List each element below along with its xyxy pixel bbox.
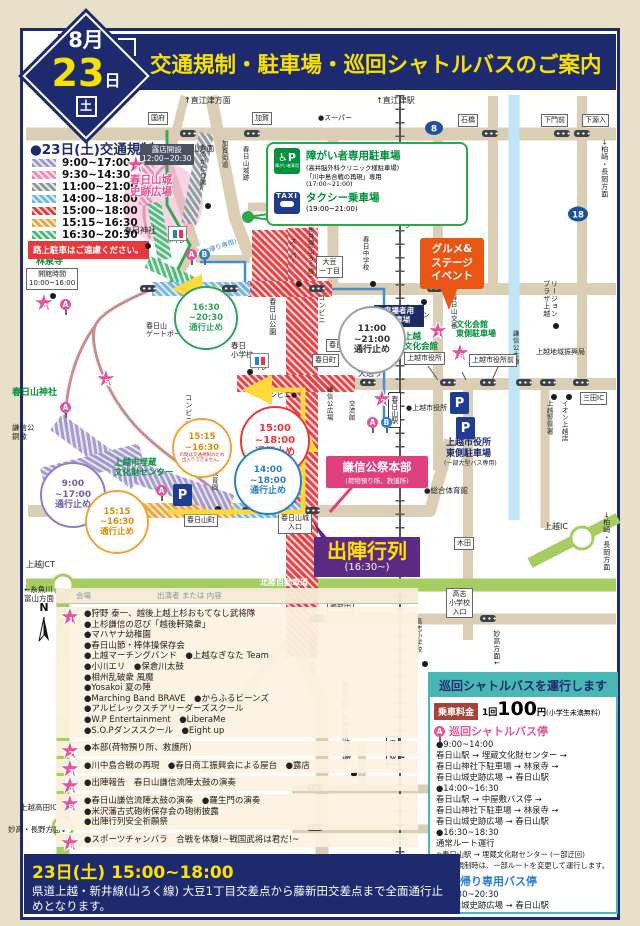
program-row-1: ★1 ●狩野 泰一、越後上越上杉おもてなし武将隊 ●上杉謙信の忍び「越後軒猿衆」… <box>56 607 418 738</box>
page-title: 交通規制・駐車場・巡回シャトルバスのご案内 <box>150 48 602 79</box>
parking-icon: P <box>450 392 469 414</box>
poi-dot <box>247 369 253 375</box>
compass-north: N <box>30 596 58 649</box>
intersection-box: 下門前 <box>541 114 568 127</box>
no-parking-warning: 路上駐車はご遠慮ください。 <box>28 241 149 259</box>
flyer-poster: 8 18 <box>0 0 640 926</box>
map-label: ↑直江津駅 <box>376 96 415 105</box>
map-label: ●上越市役所 <box>406 404 447 412</box>
map-label: スーパー <box>288 238 295 266</box>
disabled-parking-title: 障がい者専用駐車場 <box>306 148 401 163</box>
map-label: ↑直江津方面 <box>184 96 231 105</box>
map-label: 春日山城跡 <box>241 146 248 181</box>
poi-dot <box>145 243 151 249</box>
intersection-box: 春日山町 <box>184 514 218 527</box>
disabled-parking-sub2: 「川中島合戦の再現」専用 <box>306 172 401 181</box>
shuttle-stop-a-icon: A <box>60 402 71 413</box>
signal-icon <box>140 285 156 292</box>
signal-icon <box>554 130 570 137</box>
signal-icon <box>574 130 590 137</box>
busstop-box: 上越市役所 <box>404 352 445 365</box>
poi-dot <box>553 323 559 329</box>
legend-item: 15:00~18:00 <box>32 205 138 217</box>
compass-needle-icon <box>31 615 57 645</box>
wheelchair-parking-icon: ♿P障がい者専用 <box>274 148 300 174</box>
intersection-box: 大豆 一丁目 <box>316 256 343 278</box>
map-label: 上越市役所 東側駐車場 <box>446 438 491 459</box>
signal-icon <box>516 379 532 386</box>
map-label: 加賀街道 <box>220 140 227 168</box>
signal-icon <box>540 379 556 386</box>
shuttle-line: 春日山城史跡広場 → 春日山駅 <box>430 772 616 783</box>
map-label: コンビニ● <box>263 391 297 399</box>
poi-dot <box>551 394 557 400</box>
parking-icon: P <box>173 484 192 506</box>
intersection-box: 高志 小学校 入口 <box>446 588 473 618</box>
shuttle-stop-a-header: A巡回シャトルバス停 <box>430 721 616 739</box>
fare-badge: 乗車料金 <box>434 703 478 720</box>
shuttle-stop-b-icon: B <box>199 249 210 260</box>
map-label: イオン上越店 <box>560 400 567 442</box>
date-badge: 8月 23日 土 <box>20 4 152 117</box>
highway-label: 北陸自動車道 <box>260 578 308 587</box>
callout-note: の間は交通規制のため 出入りできません。 <box>180 453 225 464</box>
program-list: 会場出演者 または 内容 ★1 ●狩野 泰一、越後上越上杉おもてなし武将隊 ●上… <box>56 588 418 847</box>
shuttle-stop-a-icon: A <box>60 299 71 310</box>
closure-callout-1515-1630: 15:15 ~16:30 通行止め <box>85 490 149 554</box>
signal-icon <box>244 130 260 137</box>
shuttle-stop-a-icon: A <box>367 417 378 428</box>
intersection-box: 三田IC <box>580 392 607 405</box>
signal-icon <box>309 285 325 292</box>
map-label: 謙信公広場 <box>325 386 332 421</box>
poi-dot <box>296 281 302 287</box>
callout-time: 15:15 ~16:30 <box>185 432 219 452</box>
shuttle-line: 春日山駅 → 埋蔵文化財センター → <box>430 750 616 761</box>
closure-callout-11-21: 11:00 ~21:00 通行止め <box>338 306 406 374</box>
gourmet-stage-callout: グルメ& ステージ イベント <box>420 238 484 289</box>
map-label: ものがたり館 <box>198 144 205 186</box>
venue-star-2: ★2 <box>372 392 394 412</box>
taxi-stand-hours: (19:00~21:00) <box>306 205 380 213</box>
opening-hours-box: 開館時間 10:00~16:00 <box>26 268 78 290</box>
signal-icon <box>304 507 320 514</box>
closure-notice: 23日(土) 15:00~18:00 県道上越・新井線(山ろく線) 大豆1丁目交… <box>24 854 460 914</box>
shuttle-stop-b-icon: B <box>381 417 392 428</box>
map-label: 妙高方面↓ <box>492 630 500 666</box>
map-label: リージョン プラザ上越 <box>542 280 557 318</box>
map-label: 上越JCT <box>26 560 55 569</box>
taxi-icon: TAXI <box>274 192 300 214</box>
signal-icon <box>480 379 496 386</box>
venue-star-4: ★4 <box>34 296 56 316</box>
poi-dot <box>421 299 427 305</box>
signal-icon <box>482 130 498 137</box>
festival-hq-callout: 謙信公祭本部(荷物預り所、救護所) <box>326 456 428 488</box>
intersection-box: 春日町 <box>312 354 339 367</box>
zone-15-18-block <box>252 230 288 282</box>
shuttle-line: 春日山神社下駐車場 → 林泉寺 → <box>430 761 616 772</box>
taxi-stand-title: タクシー乗車場 <box>306 190 380 205</box>
map-label: 春日山公園 <box>268 298 276 336</box>
map-label: コンビニ <box>317 294 325 324</box>
map-label: ●スーパー <box>318 114 352 122</box>
map-label: 交流館 <box>347 400 354 421</box>
poi-dot <box>566 394 572 400</box>
map-label: 春日山神社 <box>12 388 57 399</box>
special-parking-callout: ♿P障がい者専用 障がい者専用駐車場 (高井脳外科クリニック様駐車場) 「川中島… <box>266 142 468 226</box>
shuttle-line: ●16:30~18:30 <box>430 827 616 838</box>
poi-dot <box>215 506 221 512</box>
signal-icon <box>360 379 376 386</box>
map-label: 上越地域振興局 <box>536 348 585 356</box>
intersection-box: 加賀 <box>252 112 272 125</box>
shuttle-fare: 乗車料金 1回 100 円 (小学生未満無料) <box>430 697 616 721</box>
map-label: 春日中学校 <box>361 236 368 271</box>
program-row-4: ★4 ●出陣報告 春日山謙信流陣太鼓の演奏 <box>56 776 418 791</box>
map-label: オール シーズン プール <box>404 304 430 327</box>
map-label: 春日山交番 <box>449 294 456 329</box>
shuttle-stop-a-icon: A <box>156 485 167 496</box>
disabled-parking-hours: (17:00~21:00) <box>306 181 401 188</box>
venue-star-3: ★3 <box>126 158 148 178</box>
parade-callout: 出陣行列(16:30~) <box>314 537 420 577</box>
restriction-callout-1515-1630: 15:15 ~16:30 の間は交通規制のため 出入りできません。 <box>172 418 232 478</box>
program-row-3: ★3 ●川中島合戦の再現 ●春日商工振興会による屋台 ●露店 <box>56 759 418 774</box>
intersection-box: 木田 <box>454 537 474 550</box>
legend-item: 16:30~20:30 <box>32 229 138 241</box>
map-label: ●総合体育館 <box>424 487 468 496</box>
signal-icon <box>573 379 589 386</box>
shuttle-line: 春日山駅 → 中屋敷バス停 → <box>430 794 616 805</box>
poi-dot <box>370 281 376 287</box>
disabled-parking-sub1: (高井脳外科クリニック様駐車場) <box>306 163 401 172</box>
legend-item: 9:00~17:00 <box>32 157 130 169</box>
signal-icon <box>480 615 496 622</box>
poi-dot <box>205 203 211 209</box>
shuttle-line: 通常ルート運行 <box>430 838 616 849</box>
shuttle-line: ●9:00~14:00 <box>430 739 616 750</box>
map-label: 謙信公 銅像 <box>12 424 35 442</box>
signal-icon <box>440 379 456 386</box>
stall-hours-box: 露店開設 12:00~20:30 <box>140 144 194 165</box>
venue-star-6: ★6 <box>450 346 472 366</box>
intersection-box: 石橋 <box>458 114 478 127</box>
map-label: 文化会館 東側駐車場 <box>456 320 496 339</box>
venue-star-1: ★1 <box>428 324 450 344</box>
toilet-icon <box>168 226 187 241</box>
map-label: 上越高田IC <box>20 804 57 813</box>
map-label: 上越IC <box>544 522 568 531</box>
closure-callout-1630-2030: 16:30 ~20:30 通行止め <box>174 286 238 350</box>
intersection-box: 下源入 <box>582 114 609 127</box>
shuttle-line: 春日山神社下駐車場 → 林泉寺 → <box>430 805 616 816</box>
map-label: (一部大型バス専用) <box>444 460 497 467</box>
shuttle-stop-a-icon: A <box>186 249 197 260</box>
intersection-box: 春日山城 入口 <box>278 512 312 534</box>
shuttle-line: 春日山城史跡広場 → 春日山駅 <box>430 816 616 827</box>
program-row-6: ★6 ●スポーツチャンバラ 合戦を体験!~戦国武将は君だ!~ <box>56 833 418 848</box>
venue-star-5: ★5 <box>96 372 118 392</box>
legend-item: 11:00~21:00 <box>32 181 138 193</box>
legend-item: 15:15~16:30 <box>32 217 138 229</box>
map-label: 上越警察署 <box>545 400 552 435</box>
program-header: 会場出演者 または 内容 <box>56 588 418 604</box>
shuttle-title: 巡回シャトルバスを運行します <box>430 674 616 697</box>
legend-item: 14:00~18:00 <box>32 193 138 205</box>
program-row-5: ★5 ●春日山謙信流陣太鼓の演奏 ●羅生門の演奏 ●米沢藩古式砲術保存会の砲術披… <box>56 794 418 830</box>
poi-dot <box>422 661 428 667</box>
signal-icon <box>180 130 196 137</box>
shuttle-line: ●14:00~16:30 <box>430 783 616 794</box>
legend-item: 9:30~14:30 <box>32 169 130 181</box>
parking-icon: P <box>456 417 475 439</box>
toilet-icon <box>250 353 269 368</box>
map-label: →柏崎・長岡方面 <box>600 139 608 198</box>
zone-15-18-roadB <box>237 375 355 392</box>
map-label: 上越市埋蔵 文化財センター <box>114 458 174 478</box>
closure-callout-14-18: 14:00 ~18:00 通行止め <box>234 447 302 515</box>
busstop-box: 上越市役所前 <box>469 354 517 367</box>
program-row-2: ★2 ●本部(荷物預り所、救護所) <box>56 741 418 756</box>
map-label: →柏崎・長岡方面 <box>602 512 610 571</box>
